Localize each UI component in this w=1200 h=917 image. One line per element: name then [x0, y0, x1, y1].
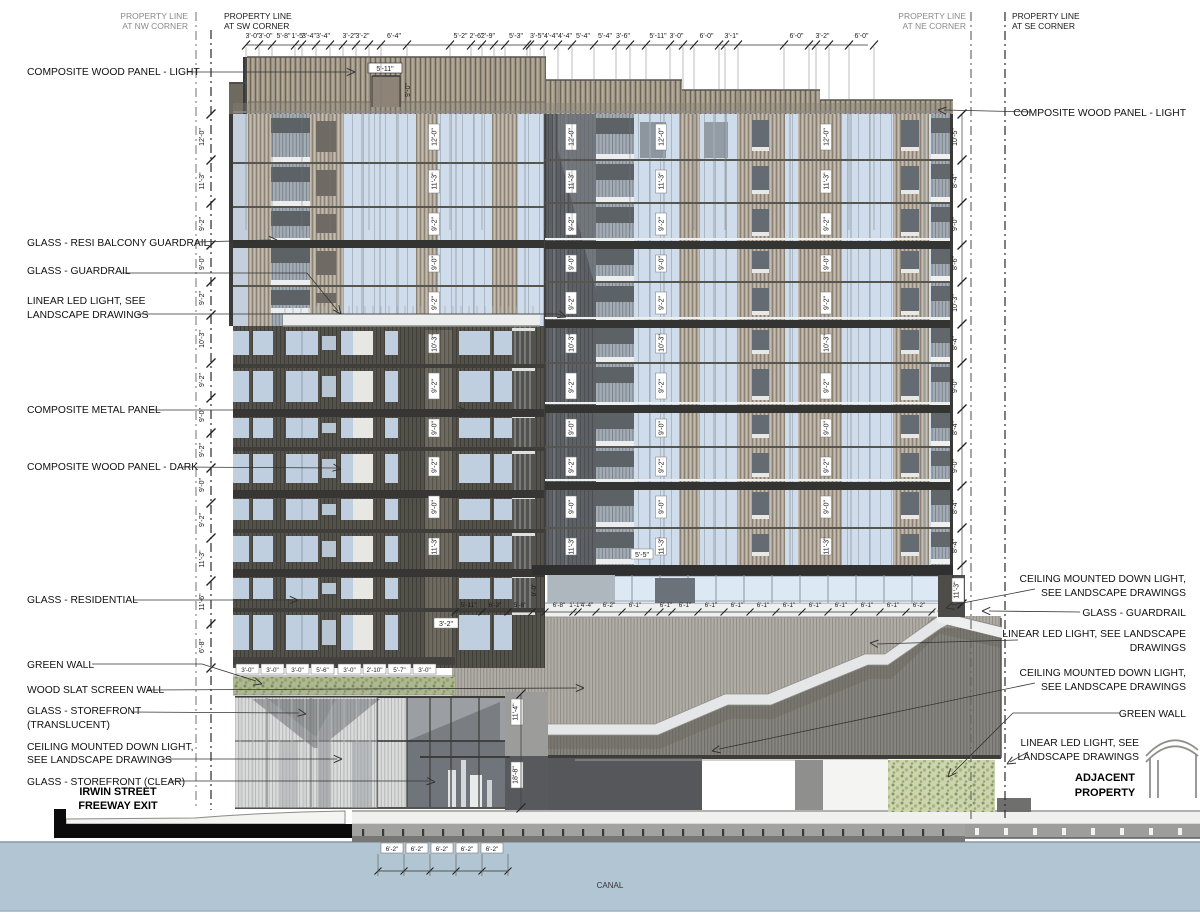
svg-text:PROPERTY LINE: PROPERTY LINE	[224, 11, 292, 21]
svg-text:3'-5": 3'-5"	[530, 33, 544, 40]
svg-text:CANAL: CANAL	[597, 881, 624, 890]
svg-text:5'-6": 5'-6"	[514, 602, 527, 609]
svg-text:9'-0": 9'-0"	[569, 421, 576, 435]
svg-text:6'-8": 6'-8"	[199, 639, 206, 653]
svg-text:GLASS - STOREFRONT: GLASS - STOREFRONT	[27, 706, 142, 717]
svg-text:9'-2": 9'-2"	[199, 513, 206, 527]
svg-text:9'-0": 9'-0"	[432, 256, 439, 270]
svg-text:9'-0": 9'-0"	[659, 421, 666, 435]
svg-text:11'-3": 11'-3"	[569, 537, 576, 555]
svg-text:COMPOSITE WOOD PANEL - LIGHT: COMPOSITE WOOD PANEL - LIGHT	[1013, 108, 1186, 119]
svg-text:9'-2": 9'-2"	[569, 459, 576, 473]
svg-text:LINEAR LED LIGHT, SEE LANDSCAP: LINEAR LED LIGHT, SEE LANDSCAPE	[1002, 629, 1186, 640]
svg-text:6'-1": 6'-1"	[783, 602, 796, 609]
svg-text:6'-2": 6'-2"	[436, 846, 449, 853]
svg-text:COMPOSITE METAL PANEL: COMPOSITE METAL PANEL	[27, 405, 161, 416]
svg-text:3'-6": 3'-6"	[616, 33, 630, 40]
svg-text:9'-0": 9'-0"	[952, 217, 959, 231]
svg-text:12'-0": 12'-0"	[432, 128, 439, 146]
svg-text:11'-3": 11'-3"	[432, 537, 439, 555]
svg-text:3'-0": 3'-0"	[259, 33, 273, 40]
svg-text:6'-2": 6'-2"	[461, 846, 474, 853]
svg-text:5'-11": 5'-11"	[649, 33, 667, 40]
svg-text:10'-3": 10'-3"	[659, 334, 666, 352]
svg-text:6'-3": 6'-3"	[489, 602, 502, 609]
svg-text:6'-2": 6'-2"	[411, 846, 424, 853]
svg-text:LINEAR LED LIGHT, SEE: LINEAR LED LIGHT, SEE	[1021, 738, 1140, 749]
svg-text:6'-1": 6'-1"	[835, 602, 848, 609]
svg-text:2'-9": 2'-9"	[481, 33, 495, 40]
svg-text:10'-3": 10'-3"	[199, 330, 206, 348]
svg-text:9'-2": 9'-2"	[659, 217, 666, 231]
svg-text:9'-0": 9'-0"	[199, 478, 206, 492]
svg-text:9'-2": 9'-2"	[824, 296, 831, 310]
svg-text:COMPOSITE WOOD PANEL - LIGHT: COMPOSITE WOOD PANEL - LIGHT	[27, 67, 200, 78]
svg-text:6'-2": 6'-2"	[913, 602, 926, 609]
svg-text:9'-0": 9'-0"	[824, 256, 831, 270]
svg-text:GREEN WALL: GREEN WALL	[27, 660, 94, 671]
svg-text:9'-2": 9'-2"	[432, 217, 439, 231]
svg-text:PROPERTY: PROPERTY	[1075, 787, 1136, 799]
svg-text:3'-4": 3'-4"	[302, 33, 316, 40]
svg-text:COMPOSITE WOOD PANEL - DARK: COMPOSITE WOOD PANEL - DARK	[27, 462, 198, 473]
svg-text:9'-2": 9'-2"	[659, 296, 666, 310]
svg-text:9'-0": 9'-0"	[824, 500, 831, 514]
svg-text:IRWIN STREET: IRWIN STREET	[79, 786, 157, 798]
svg-text:PROPERTY LINE: PROPERTY LINE	[120, 11, 188, 21]
svg-text:8'-4": 8'-4"	[952, 539, 959, 553]
svg-text:AT NW CORNER: AT NW CORNER	[122, 21, 188, 31]
svg-text:GLASS - GUARDRAIL: GLASS - GUARDRAIL	[1082, 608, 1186, 619]
svg-text:5'-4": 5'-4"	[598, 33, 612, 40]
svg-text:9'-2": 9'-2"	[199, 291, 206, 305]
svg-text:9'-2": 9'-2"	[432, 459, 439, 473]
svg-text:12'-0": 12'-0"	[659, 128, 666, 146]
svg-text:6'-2": 6'-2"	[486, 846, 499, 853]
svg-text:8'-4": 8'-4"	[952, 421, 959, 435]
svg-text:9'-2": 9'-2"	[659, 379, 666, 393]
svg-text:6'-1": 6'-1"	[731, 602, 744, 609]
svg-text:9'-2": 9'-2"	[824, 217, 831, 231]
svg-text:2'-10": 2'-10"	[366, 667, 382, 674]
svg-text:6'-1": 6'-1"	[629, 602, 642, 609]
svg-text:GLASS - RESIDENTIAL: GLASS - RESIDENTIAL	[27, 595, 138, 606]
svg-text:6'-1": 6'-1"	[660, 602, 673, 609]
svg-text:9'-2": 9'-2"	[199, 217, 206, 231]
svg-text:9'-2": 9'-2"	[659, 459, 666, 473]
svg-text:9'-2": 9'-2"	[432, 296, 439, 310]
svg-text:5'-11": 5'-11"	[461, 602, 477, 609]
svg-text:9'-0": 9'-0"	[432, 421, 439, 435]
svg-text:CEILING MOUNTED DOWN LIGHT,: CEILING MOUNTED DOWN LIGHT,	[1020, 574, 1186, 585]
svg-text:11'-3": 11'-3"	[432, 172, 439, 190]
svg-text:11'-3": 11'-3"	[659, 172, 666, 190]
svg-text:3'-2": 3'-2"	[816, 33, 830, 40]
svg-text:5'-11": 5'-11"	[376, 66, 394, 73]
svg-text:11'-3": 11'-3"	[199, 550, 206, 568]
svg-text:SEE LANDSCAPE DRAWINGS: SEE LANDSCAPE DRAWINGS	[1041, 682, 1186, 693]
svg-text:5'-5": 5'-5"	[635, 552, 649, 559]
svg-text:6'-1": 6'-1"	[861, 602, 874, 609]
svg-text:12'-0": 12'-0"	[199, 128, 206, 146]
svg-text:18'-8": 18'-8"	[513, 766, 520, 784]
svg-text:3'-0": 3'-0"	[266, 667, 279, 674]
svg-text:9'-0": 9'-0"	[199, 256, 206, 270]
svg-text:ADJACENT: ADJACENT	[1075, 772, 1135, 784]
svg-text:3'-0": 3'-0"	[670, 33, 684, 40]
svg-text:11'-3": 11'-3"	[824, 537, 831, 555]
svg-text:LANDSCAPE DRAWINGS: LANDSCAPE DRAWINGS	[27, 310, 149, 321]
svg-text:5'-4": 5'-4"	[576, 33, 590, 40]
svg-text:3'-0": 3'-0"	[343, 667, 356, 674]
svg-text:9'-0": 9'-0"	[824, 421, 831, 435]
svg-text:8'-6": 8'-6"	[952, 256, 959, 270]
svg-text:8'-4": 8'-4"	[952, 500, 959, 514]
svg-text:10'-3": 10'-3"	[952, 294, 959, 312]
svg-text:LINEAR LED LIGHT, SEE: LINEAR LED LIGHT, SEE	[27, 296, 146, 307]
svg-text:3'-0": 3'-0"	[418, 667, 431, 674]
svg-text:6'-2": 6'-2"	[386, 846, 399, 853]
svg-text:11'-3": 11'-3"	[199, 172, 206, 190]
svg-text:9'-2": 9'-2"	[824, 379, 831, 393]
svg-text:3'-4": 3'-4"	[316, 33, 330, 40]
svg-text:9'-2": 9'-2"	[199, 443, 206, 457]
svg-text:5'-3": 5'-3"	[509, 33, 523, 40]
svg-text:CEILING MOUNTED DOWN LIGHT,: CEILING MOUNTED DOWN LIGHT,	[27, 742, 193, 753]
svg-text:5'-7": 5'-7"	[393, 667, 406, 674]
svg-text:6'-1": 6'-1"	[809, 602, 822, 609]
svg-text:GLASS - GUARDRAIL: GLASS - GUARDRAIL	[27, 266, 131, 277]
svg-text:12'-0": 12'-0"	[824, 128, 831, 146]
svg-text:10'-3": 10'-3"	[824, 334, 831, 352]
svg-text:(TRANSLUCENT): (TRANSLUCENT)	[27, 720, 110, 731]
svg-text:9'-0": 9'-0"	[531, 583, 538, 597]
svg-text:3'-2": 3'-2"	[356, 33, 370, 40]
svg-text:PROPERTY LINE: PROPERTY LINE	[898, 11, 966, 21]
svg-text:6'-0": 6'-0"	[855, 33, 869, 40]
svg-text:6'-0": 6'-0"	[790, 33, 804, 40]
svg-text:3'-0": 3'-0"	[241, 667, 254, 674]
svg-text:GREEN WALL: GREEN WALL	[1119, 709, 1186, 720]
svg-text:6'-1": 6'-1"	[757, 602, 770, 609]
svg-text:4'-4": 4'-4"	[581, 602, 594, 609]
svg-text:11'-6": 11'-6"	[199, 593, 206, 611]
svg-text:11'-4": 11'-4"	[513, 703, 520, 721]
svg-text:PROPERTY LINE: PROPERTY LINE	[1012, 11, 1080, 21]
svg-text:11'-3": 11'-3"	[659, 537, 666, 555]
svg-text:9'-0": 9'-0"	[569, 256, 576, 270]
svg-text:9'-0": 9'-0"	[405, 83, 412, 97]
svg-text:6'-8": 6'-8"	[553, 602, 566, 609]
svg-text:SEE LANDSCAPE DRAWINGS: SEE LANDSCAPE DRAWINGS	[27, 755, 172, 766]
svg-text:SEE LANDSCAPE DRAWINGS: SEE LANDSCAPE DRAWINGS	[1041, 588, 1186, 599]
svg-text:6'-2": 6'-2"	[603, 602, 616, 609]
svg-text:9'-0": 9'-0"	[952, 459, 959, 473]
svg-text:9'-2": 9'-2"	[199, 373, 206, 387]
svg-text:CEILING MOUNTED DOWN LIGHT,: CEILING MOUNTED DOWN LIGHT,	[1020, 668, 1186, 679]
svg-text:6'-4": 6'-4"	[387, 33, 401, 40]
svg-text:3'-1": 3'-1"	[725, 33, 739, 40]
svg-text:WOOD SLAT SCREEN WALL: WOOD SLAT SCREEN WALL	[27, 685, 164, 696]
svg-text:9'-0": 9'-0"	[569, 500, 576, 514]
svg-text:5'-8": 5'-8"	[277, 33, 291, 40]
svg-text:9'-0": 9'-0"	[659, 500, 666, 514]
svg-text:4'-4": 4'-4"	[558, 33, 572, 40]
svg-text:6'-0": 6'-0"	[700, 33, 714, 40]
svg-text:9'-2": 9'-2"	[432, 379, 439, 393]
svg-text:AT SE CORNER: AT SE CORNER	[1012, 21, 1075, 31]
svg-text:11'-3": 11'-3"	[824, 172, 831, 190]
svg-text:LANDSCAPE DRAWINGS: LANDSCAPE DRAWINGS	[1018, 752, 1140, 763]
svg-text:AT SW CORNER: AT SW CORNER	[224, 21, 289, 31]
svg-text:5'-6": 5'-6"	[316, 667, 329, 674]
svg-text:3'-0": 3'-0"	[291, 667, 304, 674]
svg-text:9'-2": 9'-2"	[569, 296, 576, 310]
svg-text:6'-1": 6'-1"	[705, 602, 718, 609]
svg-text:9'-0": 9'-0"	[432, 500, 439, 514]
svg-text:8'-4": 8'-4"	[952, 174, 959, 188]
svg-text:FREEWAY EXIT: FREEWAY EXIT	[78, 800, 158, 812]
svg-text:DRAWINGS: DRAWINGS	[1130, 643, 1186, 654]
svg-text:AT NE CORNER: AT NE CORNER	[903, 21, 966, 31]
svg-text:10'-5": 10'-5"	[952, 128, 959, 146]
svg-text:11'-3": 11'-3"	[954, 581, 961, 599]
svg-text:GLASS - RESI BALCONY GUARDRAIL: GLASS - RESI BALCONY GUARDRAIL	[27, 238, 210, 249]
svg-text:5'-2": 5'-2"	[454, 33, 468, 40]
svg-text:8'-4": 8'-4"	[952, 336, 959, 350]
svg-text:6'-1": 6'-1"	[887, 602, 900, 609]
svg-text:10'-3": 10'-3"	[432, 334, 439, 352]
svg-text:9'-2": 9'-2"	[824, 459, 831, 473]
svg-text:9'-2": 9'-2"	[569, 379, 576, 393]
svg-text:3'-2": 3'-2"	[439, 621, 453, 628]
svg-text:6'-1": 6'-1"	[679, 602, 692, 609]
svg-text:10'-3": 10'-3"	[569, 334, 576, 352]
svg-text:9'-0": 9'-0"	[952, 379, 959, 393]
svg-text:9'-0": 9'-0"	[659, 256, 666, 270]
svg-text:4'-4": 4'-4"	[544, 33, 558, 40]
